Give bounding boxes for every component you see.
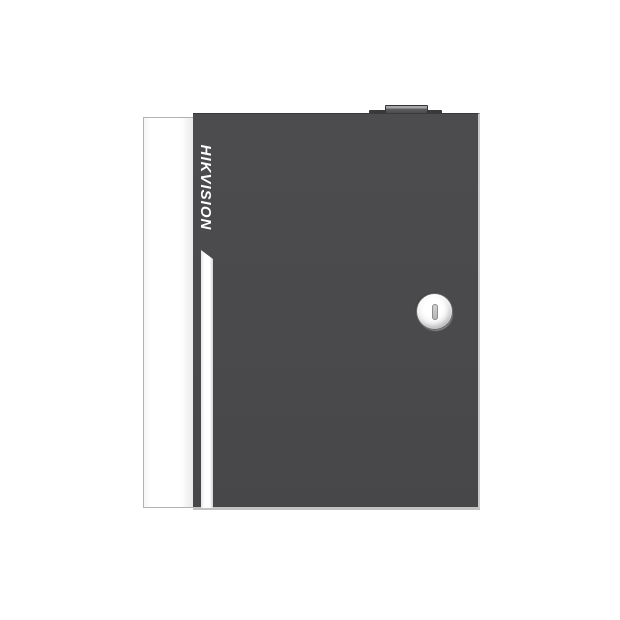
cam-lock: [417, 294, 452, 329]
keyhole-slot: [432, 304, 438, 320]
brand-accent-stripe: [201, 250, 213, 508]
product-photo: HIKVISION: [0, 0, 620, 620]
enclosure-side-panel: [143, 117, 194, 508]
brand-logo-vertical: HIKVISION: [198, 142, 213, 233]
